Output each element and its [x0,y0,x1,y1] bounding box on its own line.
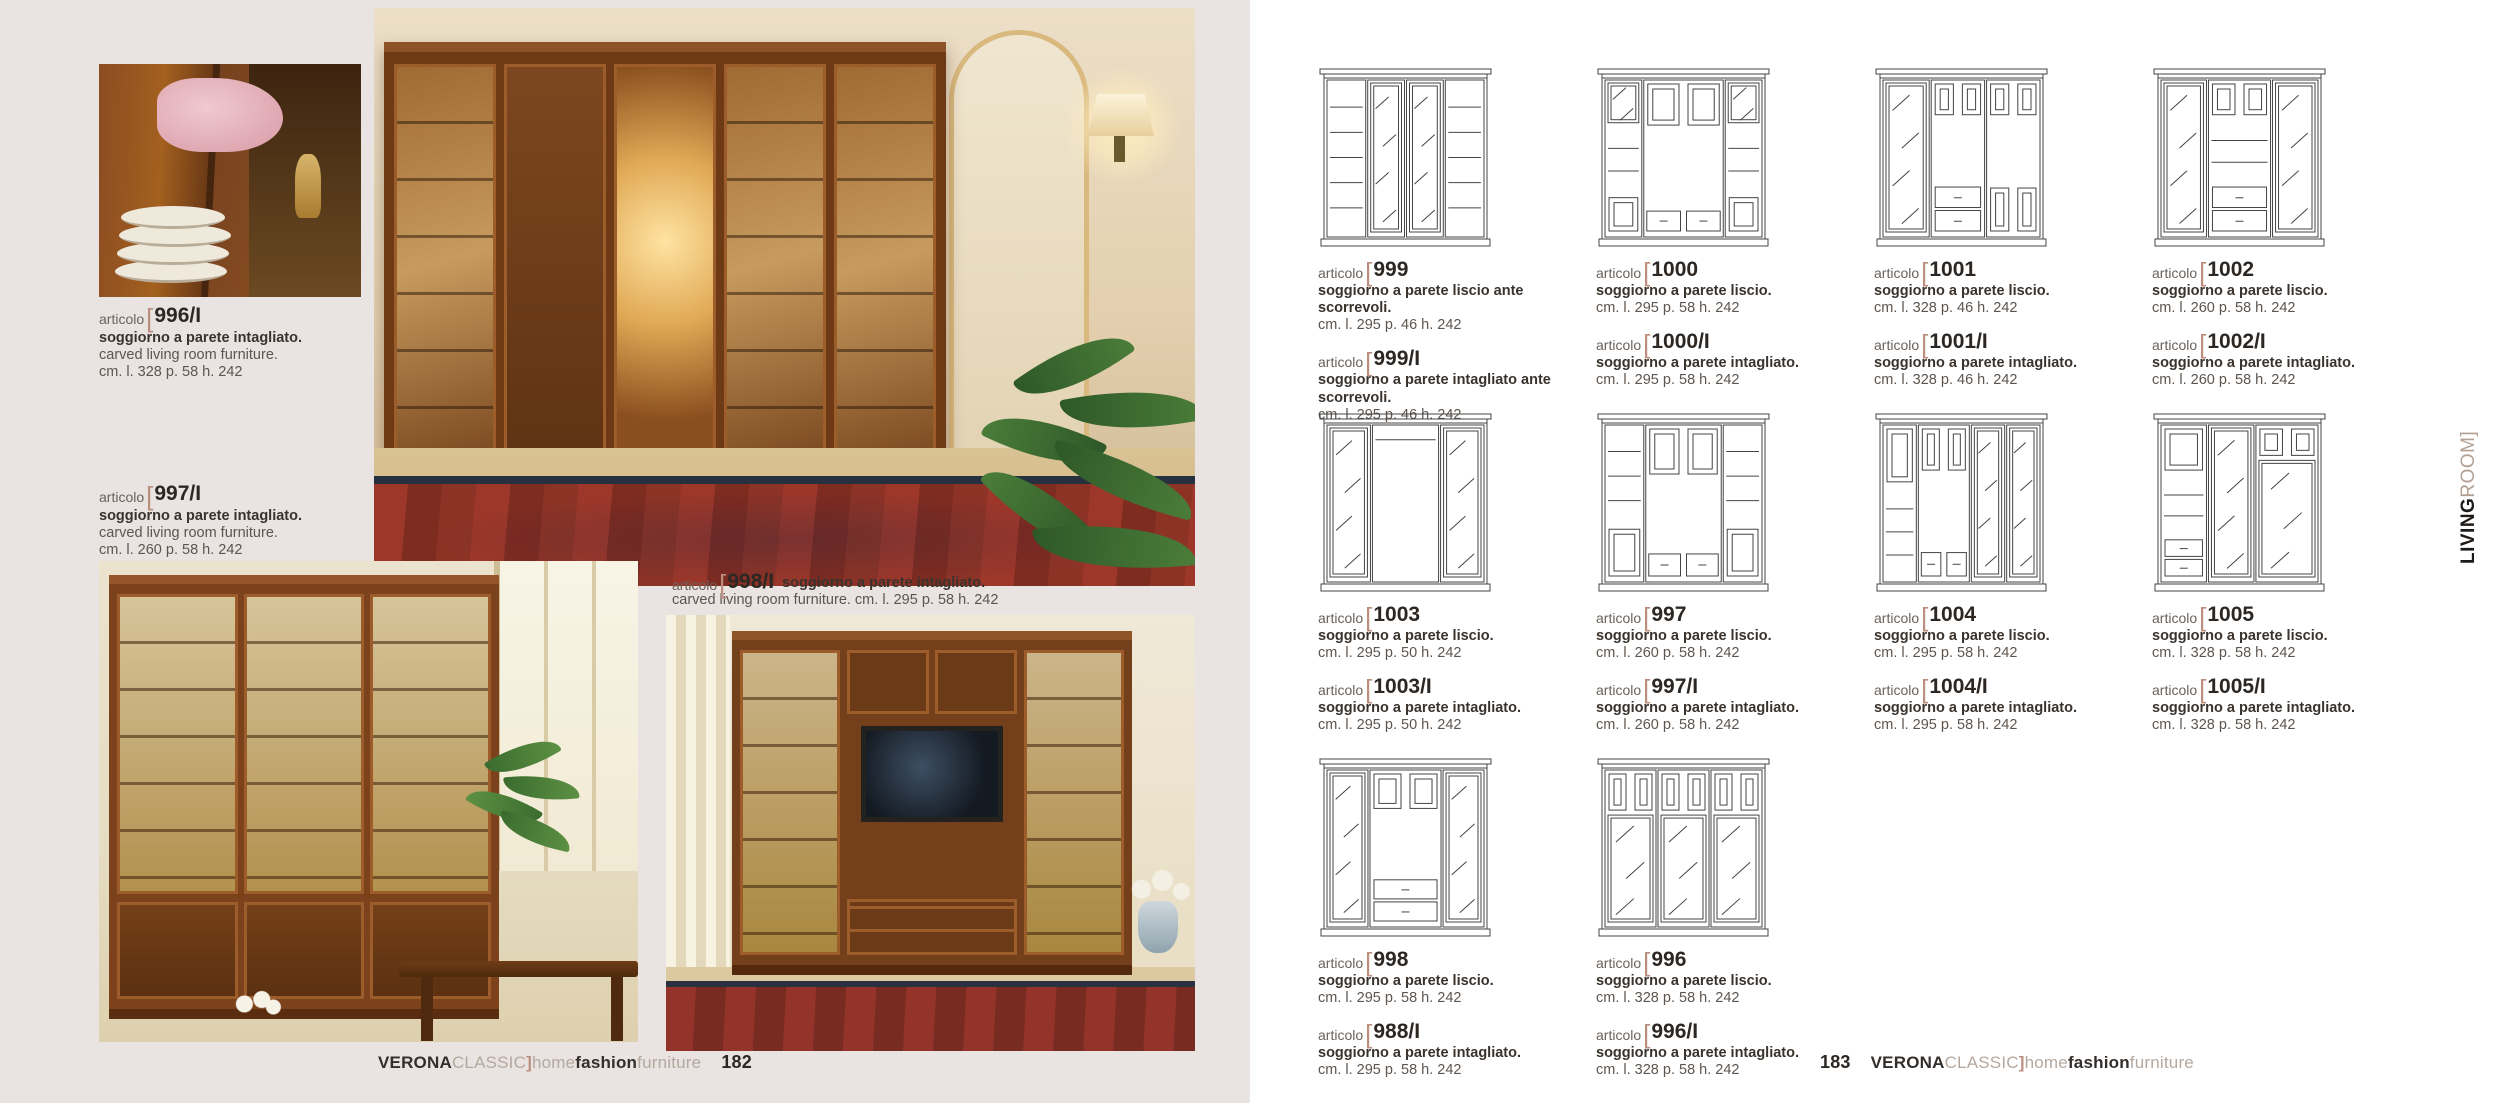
dimensions: cm. l. 295 p. 46 h. 242 [1318,317,1596,334]
furniture-line-drawing [1596,750,1771,940]
desc-italian: soggiorno a parete liscio. [2152,283,2430,300]
glass-column [740,650,840,955]
wood-door [847,650,929,714]
articolo-label: articolo [1318,1028,1363,1042]
side-label-room: ROOM [2458,437,2479,498]
article-number: 996/I [1651,1023,1698,1042]
dimensions: cm. l. 295 p. 58 h. 242 [1318,990,1596,1007]
article-number: 1000/I [1651,333,1709,352]
articolo-label: articolo [1318,683,1363,697]
desc-italian: soggiorno a parete intagliato. [2152,355,2430,372]
page-number: 182 [721,1052,752,1072]
desc-italian: soggiorno a parete liscio. [1596,628,1874,645]
brand-part: furniture [637,1053,701,1072]
desc-italian: soggiorno a parete liscio. [1318,628,1596,645]
bracket-accent: [ [1643,608,1650,628]
product-entry: articolo[1001/I soggiorno a parete intag… [1874,332,2152,389]
furniture-line-drawing [1318,405,1493,595]
article-number: 998/I [727,573,774,592]
article-number: 1001 [1929,261,1976,280]
product-entry: articolo[1003/I soggiorno a parete intag… [1318,677,1596,734]
articolo-line: articolo[1005 [2152,605,2430,625]
product-drawing [1596,397,1874,595]
product-cell: articolo[999 soggiorno a parete liscio a… [1318,52,1596,397]
article-number: 1004 [1929,606,1976,625]
side-label-living: LIVING [2458,498,2479,564]
glass-door [244,594,365,894]
product-entry: articolo[999 soggiorno a parete liscio a… [1318,260,1596,335]
articolo-label: articolo [1596,683,1641,697]
product-entry: articolo[1001 soggiorno a parete liscio.… [1874,260,2152,317]
article-number: 1001/I [1929,333,1987,352]
product-drawing [2152,397,2430,595]
product-text-997I: articolo[997/I soggiorno a parete intagl… [99,484,419,560]
desc-english: carved living room furniture. [99,347,419,364]
articolo-label: articolo [1596,956,1641,970]
product-drawing [1596,742,1874,940]
dimensions: cm. l. 295 p. 58 h. 242 [1596,300,1874,317]
product-entry: articolo[1002 soggiorno a parete liscio.… [2152,260,2430,317]
product-entry: articolo[998 soggiorno a parete liscio. … [1318,950,1596,1007]
desc-italian: soggiorno a parete intagliato. [2152,700,2430,717]
bracket-accent: [ [2199,335,2206,355]
product-cell: articolo[1005 soggiorno a parete liscio.… [2152,397,2430,742]
brand-part: furniture [2130,1053,2194,1072]
dimensions: cm. l. 328 p. 58 h. 242 [2152,645,2430,662]
catalog-spread: articolo[996/I soggiorno a parete intagl… [0,0,2500,1103]
articolo-label: articolo [1318,611,1363,625]
wood-door [117,902,238,999]
articolo-line: articolo[996 [1596,950,1874,970]
television [861,726,1003,822]
articolo-line: articolo[1000 [1596,260,1874,280]
desc-italian: soggiorno a parete liscio. [2152,628,2430,645]
article-number: 997 [1651,606,1686,625]
footer-left: VERONACLASSIC]homefashionfurniture182 [378,1052,752,1073]
article-number: 999 [1373,261,1408,280]
bookcase-glass-top [117,594,491,894]
dimensions: cm. l. 328 p. 46 h. 242 [1874,372,2152,389]
articolo-label: articolo [1318,266,1363,280]
product-drawing [1596,52,1874,250]
bracket-accent: [ [1365,608,1372,628]
articolo-label: articolo [2152,266,2197,280]
product-entry: articolo[1004 soggiorno a parete liscio.… [1874,605,2152,662]
bracket-accent: [ [1643,953,1650,973]
desc-english: carved living room furniture. [99,525,419,542]
drawers [847,899,1017,955]
brand-part: VERONA [1871,1053,1945,1072]
articolo-line: articolo[1004 [1874,605,2152,625]
wood-door [935,650,1017,714]
lighted-niche [614,64,716,458]
article-number: 999/I [1373,350,1420,369]
articolo-line: articolo[998/Isoggiorno a parete intagli… [672,572,1212,592]
bookcase [109,575,499,1019]
desc-italian: soggiorno a parete intagliato. [1318,1045,1596,1062]
product-entry: articolo[988/I soggiorno a parete intagl… [1318,1022,1596,1079]
dimensions: cm. l. 328 p. 58 h. 242 [99,364,419,381]
articolo-label: articolo [1596,266,1641,280]
product-drawing [1318,397,1596,595]
dimensions: cm. l. 295 p. 58 h. 242 [1874,645,2152,662]
photo-tv-wall-unit [666,615,1195,1051]
article-number: 996/I [154,307,201,326]
desc-italian: soggiorno a parete intagliato. [782,576,985,591]
product-cell: articolo[996 soggiorno a parete liscio. … [1596,742,1874,1087]
articolo-label: articolo [2152,338,2197,352]
articolo-line: articolo[996/I [1596,1022,1874,1042]
articolo-line: articolo[1001 [1874,260,2152,280]
articolo-line: articolo[997/I [1596,677,1874,697]
table-leg [421,977,433,1041]
bracket-accent: [ [146,487,153,507]
desc-english-dims: carved living room furniture. cm. l. 295… [672,592,1212,609]
product-text-996I: articolo[996/I soggiorno a parete intagl… [99,306,419,382]
articolo-line: articolo[1002/I [2152,332,2430,352]
article-number: 1003 [1373,606,1420,625]
articolo-label: articolo [1874,266,1919,280]
product-entry: articolo[996 soggiorno a parete liscio. … [1596,950,1874,1007]
glass-door [834,64,936,458]
articolo-label: articolo [1874,683,1919,697]
bracket-accent: [ [1365,353,1372,373]
dimensions: cm. l. 260 p. 58 h. 242 [1596,717,1874,734]
article-number: 988/I [1373,1023,1420,1042]
articolo-line: articolo[997/I [99,484,419,504]
bracket-accent: [ [1921,263,1928,283]
articolo-line: articolo[997 [1596,605,1874,625]
glass-door [724,64,826,458]
bracket-accent: [ [1643,263,1650,283]
bracket-accent: [ [1643,335,1650,355]
furniture-line-drawing [1874,60,2049,250]
product-cell: articolo[998 soggiorno a parete liscio. … [1318,742,1596,1087]
wall-unit [384,42,946,482]
articolo-label: articolo [1318,956,1363,970]
right-page: articolo[999 soggiorno a parete liscio a… [1250,0,2500,1103]
article-number: 1002/I [2207,333,2265,352]
product-cell: articolo[1001 soggiorno a parete liscio.… [1874,52,2152,397]
glass-column [1024,650,1124,955]
brand-part: home [532,1053,575,1072]
small-tree [467,737,560,873]
side-label-bracket: ] [2458,431,2479,437]
furniture-line-drawing [2152,405,2327,595]
product-entry: articolo[1000 soggiorno a parete liscio.… [1596,260,1874,317]
articolo-line: articolo[1000/I [1596,332,1874,352]
dimensions: cm. l. 260 p. 58 h. 242 [1596,645,1874,662]
article-number: 1005/I [2207,678,2265,697]
bracket-accent: [ [1921,335,1928,355]
bookcase-base [117,902,491,999]
wall-lamp [1088,94,1154,136]
articolo-label: articolo [672,578,717,592]
table-leg [611,977,623,1041]
furniture-line-drawing [1596,60,1771,250]
upper-doors [847,650,1017,714]
article-number: 1002 [2207,261,2254,280]
left-page: articolo[996/I soggiorno a parete intagl… [0,0,1250,1103]
articolo-line: articolo[1003 [1318,605,1596,625]
bracket-accent: [ [2199,608,2206,628]
articolo-label: articolo [1596,338,1641,352]
tv-wall-unit [732,631,1132,975]
desc-italian: soggiorno a parete liscio. [1596,283,1874,300]
wood-door [244,902,365,999]
glass-door [1024,650,1124,955]
desc-italian: soggiorno a parete liscio. [1596,973,1874,990]
plate-stack [121,206,225,229]
product-cell: articolo[1002 soggiorno a parete liscio.… [2152,52,2430,397]
brand-logo: VERONACLASSIC]homefashionfurniture [378,1053,701,1072]
desc-italian: soggiorno a parete liscio. [1318,973,1596,990]
brand-part: CLASSIC [452,1053,526,1072]
bracket-accent: [ [1643,1025,1650,1045]
articolo-line: articolo[1002 [2152,260,2430,280]
products-grid: articolo[999 soggiorno a parete liscio a… [1318,52,2430,1087]
articolo-line: articolo[1003/I [1318,677,1596,697]
furniture-line-drawing [1318,750,1493,940]
product-entry: articolo[1005 soggiorno a parete liscio.… [2152,605,2430,662]
desc-italian: soggiorno a parete liscio ante scorrevol… [1318,283,1596,318]
articolo-label: articolo [1318,355,1363,369]
article-number: 997/I [154,485,201,504]
side-label-livingroom: LIVINGROOM] [2458,431,2480,564]
articolo-line: articolo[998 [1318,950,1596,970]
desc-italian: soggiorno a parete liscio. [1874,283,2152,300]
article-number: 997/I [1651,678,1698,697]
product-drawing [1318,52,1596,250]
article-number: 1003/I [1373,678,1431,697]
table [399,961,638,977]
brand-part: CLASSIC [1945,1053,2019,1072]
oriental-rug [666,981,1195,1051]
dimensions: cm. l. 295 p. 58 h. 242 [1596,372,1874,389]
articolo-line: articolo[1004/I [1874,677,2152,697]
brand-part: VERONA [378,1053,452,1072]
articolo-label: articolo [99,490,144,504]
product-entry: articolo[1000/I soggiorno a parete intag… [1596,332,1874,389]
dimensions: cm. l. 260 p. 58 h. 242 [2152,300,2430,317]
bracket-accent: [ [2199,680,2206,700]
brand-part: home [2025,1053,2068,1072]
articolo-label: articolo [1874,338,1919,352]
dimensions: cm. l. 260 p. 58 h. 242 [99,542,419,559]
brand-part: fashion [575,1053,637,1072]
bracket-accent: [ [1365,953,1372,973]
photo-cabinet-detail [99,64,361,297]
article-number: 1005 [2207,606,2254,625]
brand-logo: VERONACLASSIC]homefashionfurniture [1871,1053,2194,1072]
decanter [295,154,321,218]
center-column [847,650,1017,955]
product-drawing [1874,397,2152,595]
bracket-accent: [ [1365,263,1372,283]
footer-right: 183VERONACLASSIC]homefashionfurniture [1820,1052,2194,1073]
potted-plant [970,330,1195,586]
articolo-line: articolo[1001/I [1874,332,2152,352]
product-cell: articolo[1004 soggiorno a parete liscio.… [1874,397,2152,742]
wood-door [504,64,606,458]
desc-italian: soggiorno a parete intagliato. [1596,355,1874,372]
articolo-line: articolo[988/I [1318,1022,1596,1042]
desc-italian: soggiorno a parete intagliato. [1874,355,2152,372]
white-flowers [227,989,285,1019]
articolo-label: articolo [2152,683,2197,697]
wall-lamp-arm [1114,136,1125,162]
page-number: 183 [1820,1052,1851,1072]
product-entry: articolo[997/I soggiorno a parete intagl… [1596,677,1874,734]
product-drawing [2152,52,2430,250]
dimensions: cm. l. 295 p. 50 h. 242 [1318,717,1596,734]
article-number: 1004/I [1929,678,1987,697]
article-number: 1000 [1651,261,1698,280]
article-number: 996 [1651,951,1686,970]
product-cell: articolo[1000 soggiorno a parete liscio.… [1596,52,1874,397]
white-flowers [1124,865,1194,909]
glass-door [394,64,496,458]
furniture-line-drawing [1318,60,1493,250]
dimensions: cm. l. 328 p. 58 h. 242 [1596,990,1874,1007]
photo-living-room-main [374,8,1195,586]
bracket-accent: [ [1643,680,1650,700]
glass-door [740,650,840,955]
articolo-line: articolo[999 [1318,260,1596,280]
bracket-accent: [ [2199,263,2206,283]
product-drawing [1318,742,1596,940]
bracket-accent: [ [1365,1025,1372,1045]
dimensions: cm. l. 295 p. 58 h. 242 [1874,717,2152,734]
dimensions: cm. l. 328 p. 46 h. 242 [1874,300,2152,317]
product-text-998I: articolo[998/Isoggiorno a parete intagli… [672,572,1212,609]
articolo-label: articolo [1874,611,1919,625]
article-number: 998 [1373,951,1408,970]
product-entry: articolo[1005/I soggiorno a parete intag… [2152,677,2430,734]
bracket-accent: [ [1921,680,1928,700]
bracket-accent: [ [1921,608,1928,628]
product-entry: articolo[1002/I soggiorno a parete intag… [2152,332,2430,389]
articolo-line: articolo[999/I [1318,350,1596,370]
dimensions: cm. l. 295 p. 50 h. 242 [1318,645,1596,662]
dimensions: cm. l. 328 p. 58 h. 242 [2152,717,2430,734]
photo-bookcase [99,561,638,1042]
brand-part: fashion [2068,1053,2130,1072]
articolo-line: articolo[996/I [99,306,419,326]
product-drawing [1874,52,2152,250]
bracket-accent: [ [146,309,153,329]
furniture-line-drawing [2152,60,2327,250]
articolo-label: articolo [99,312,144,326]
product-cell: articolo[1003 soggiorno a parete liscio.… [1318,397,1596,742]
product-entry: articolo[1004/I soggiorno a parete intag… [1874,677,2152,734]
desc-italian: soggiorno a parete intagliato. [1874,700,2152,717]
product-entry: articolo[1003 soggiorno a parete liscio.… [1318,605,1596,662]
articolo-label: articolo [1596,1028,1641,1042]
furniture-line-drawing [1874,405,2049,595]
furniture-line-drawing [1596,405,1771,595]
bracket-accent: [ [1365,680,1372,700]
product-cell: articolo[997 soggiorno a parete liscio. … [1596,397,1874,742]
dimensions: cm. l. 260 p. 58 h. 242 [2152,372,2430,389]
desc-italian: soggiorno a parete liscio. [1874,628,2152,645]
product-entry: articolo[997 soggiorno a parete liscio. … [1596,605,1874,662]
dimensions: cm. l. 295 p. 58 h. 242 [1318,1062,1596,1079]
articolo-label: articolo [2152,611,2197,625]
bracket-accent: [ [719,575,726,595]
articolo-line: articolo[1005/I [2152,677,2430,697]
glass-door [117,594,238,894]
desc-italian: soggiorno a parete intagliato. [1318,700,1596,717]
articolo-label: articolo [1596,611,1641,625]
desc-italian: soggiorno a parete intagliato. [1596,700,1874,717]
